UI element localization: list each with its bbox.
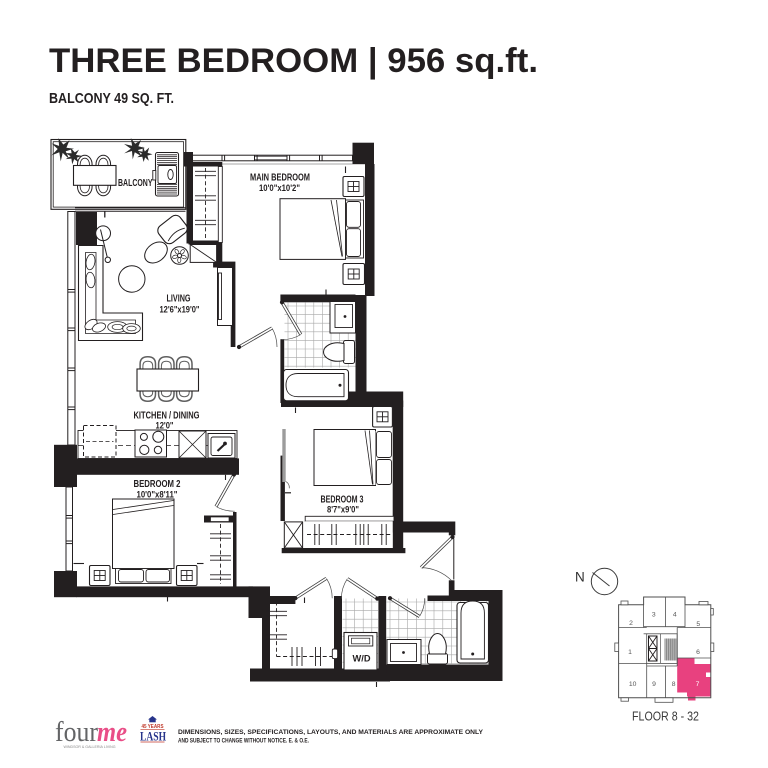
svg-text:7: 7 xyxy=(696,681,700,688)
svg-text:BALCONY 49 SQ. FT.: BALCONY 49 SQ. FT. xyxy=(49,91,174,107)
svg-text:WINDSOR & GALLERIA LIVING: WINDSOR & GALLERIA LIVING xyxy=(64,745,116,749)
svg-text:12'6"x19'0": 12'6"x19'0" xyxy=(160,304,200,315)
svg-text:4: 4 xyxy=(673,612,677,619)
svg-text:FLOOR 8 - 32: FLOOR 8 - 32 xyxy=(632,709,699,724)
svg-text:3: 3 xyxy=(652,612,656,619)
svg-text:12'0": 12'0" xyxy=(156,420,174,431)
svg-text:6: 6 xyxy=(696,649,700,656)
svg-text:N: N xyxy=(575,570,585,585)
svg-text:2: 2 xyxy=(629,620,633,627)
svg-text:LIVING: LIVING xyxy=(167,294,191,305)
svg-text:me: me xyxy=(97,716,127,748)
svg-text:10'0"x10'2": 10'0"x10'2" xyxy=(259,183,300,194)
svg-text:9: 9 xyxy=(652,681,656,688)
svg-text:DIMENSIONS, SIZES, SPECIFICATI: DIMENSIONS, SIZES, SPECIFICATIONS, LAYOU… xyxy=(178,729,484,736)
svg-text:1: 1 xyxy=(628,649,632,656)
svg-text:BALCONY: BALCONY xyxy=(118,178,153,189)
svg-text:8'7"x9'0": 8'7"x9'0" xyxy=(327,504,359,515)
svg-text:8: 8 xyxy=(672,681,676,688)
svg-text:5: 5 xyxy=(696,621,700,628)
svg-text:AND SUBJECT TO CHANGE WITHOUT: AND SUBJECT TO CHANGE WITHOUT NOTICE. E.… xyxy=(178,737,309,744)
svg-text:THREE BEDROOM | 956 sq.ft.: THREE BEDROOM | 956 sq.ft. xyxy=(49,42,538,80)
svg-text:LASH: LASH xyxy=(140,730,166,744)
svg-text:four: four xyxy=(55,716,98,748)
svg-text:10: 10 xyxy=(629,681,637,688)
svg-text:BEDROOM 2: BEDROOM 2 xyxy=(134,479,181,490)
svg-text:W/D: W/D xyxy=(353,654,371,664)
